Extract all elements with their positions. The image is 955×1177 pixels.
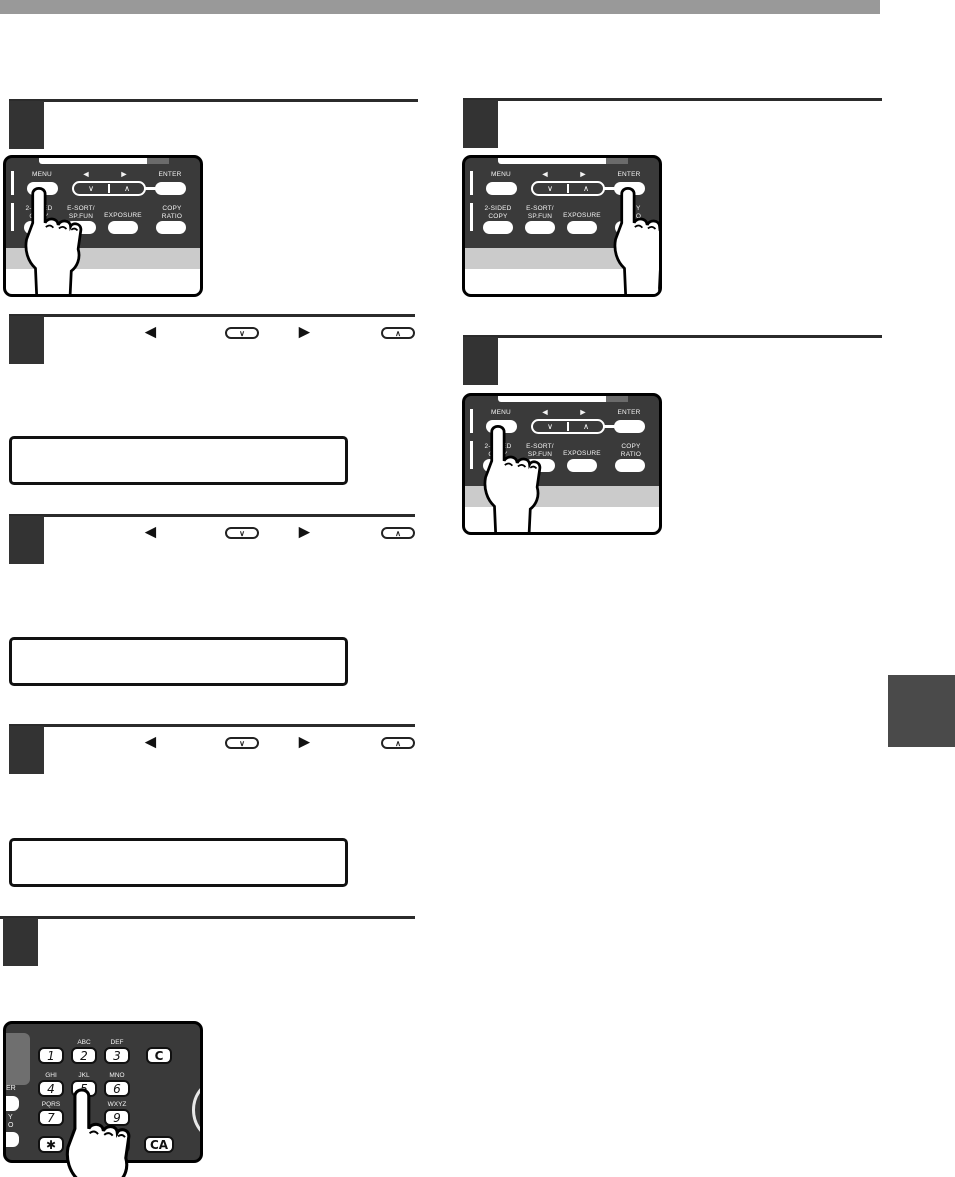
step-rule <box>9 99 418 102</box>
key-letters: MNO <box>104 1072 130 1079</box>
key-3: 3 <box>104 1047 130 1064</box>
step-number-box <box>463 337 498 385</box>
left-arrow-icon: ◄ <box>141 525 160 541</box>
step-rule <box>463 335 882 338</box>
edge-label-er: ER <box>6 1085 16 1093</box>
edge-cutoff-button <box>3 1096 19 1111</box>
down-key-glyph: ∨ <box>239 739 245 748</box>
right-arrow-label: ► <box>573 408 593 417</box>
step-rule <box>463 98 882 101</box>
control-panel-illustration-menu: MENU ◄ ► ∨ ∧ ENTER 2-SIDED COPY E-SORT/ … <box>3 155 203 297</box>
down-key-icon: ∨ <box>225 527 259 539</box>
pointing-hand-illustration <box>473 421 549 535</box>
key-1: 1 <box>38 1047 64 1064</box>
exposure-button <box>567 221 597 234</box>
down-key-glyph: ∨ <box>239 329 245 338</box>
exposure-label: EXPOSURE <box>560 450 604 458</box>
right-arrow-icon: ► <box>295 735 314 751</box>
enter-label: ENTER <box>148 171 192 179</box>
display-slot-notch <box>606 158 628 164</box>
exposure-button <box>108 221 138 234</box>
label-line1: EXPOSURE <box>563 212 601 219</box>
up-key-icon: ∧ <box>381 737 415 749</box>
key-digit: 3 <box>113 1049 121 1063</box>
left-arrow-label: ◄ <box>76 170 96 179</box>
enter-button <box>614 420 645 433</box>
edge-cutoff-button <box>3 1132 19 1147</box>
arrow-keys-group: ∨ ∧ <box>531 181 605 196</box>
display-slot-notch <box>606 396 628 402</box>
panel-tick <box>470 203 473 231</box>
dial-arc <box>200 1086 203 1136</box>
menu-label: MENU <box>20 171 64 179</box>
copy-ratio-button <box>156 221 186 234</box>
menu-label: MENU <box>479 409 523 417</box>
left-arrow-label: ◄ <box>535 170 555 179</box>
step-rule <box>9 314 415 317</box>
key-digit: C <box>155 1049 164 1063</box>
step-number-box <box>3 918 38 966</box>
enter-label: ENTER <box>607 409 651 417</box>
label-line2: COPY <box>488 213 507 220</box>
step-number-box <box>9 316 44 364</box>
control-panel-illustration-menu: MENU ◄ ► ∨ ∧ ENTER 2-SIDED COPY E-SORT/ … <box>462 393 662 535</box>
left-arrow-icon: ◄ <box>141 325 160 341</box>
lcd-display-box <box>9 637 348 686</box>
right-arrow-icon: ► <box>295 325 314 341</box>
label-line1: EXPOSURE <box>104 212 142 219</box>
exposure-label: EXPOSURE <box>560 212 604 220</box>
down-key-glyph: ∨ <box>533 185 567 193</box>
right-arrow-label: ► <box>114 170 134 179</box>
key-letters: DEF <box>104 1039 130 1046</box>
left-arrow-label: ◄ <box>535 408 555 417</box>
copy-ratio-label: COPY RATIO <box>609 443 653 458</box>
enter-label: ENTER <box>607 171 651 179</box>
up-key-glyph: ∧ <box>395 329 401 338</box>
edge-label-y: Y <box>8 1114 13 1122</box>
panel-tick <box>470 171 473 195</box>
two-sided-copy-label: 2-SIDED COPY <box>476 205 520 220</box>
up-key-glyph: ∧ <box>395 529 401 538</box>
clear-key: C <box>146 1047 172 1064</box>
manual-page: ◄ ∨ ► ∧ ◄ ∨ ► ∧ ◄ ∨ ► ∧ MENU ◄ ► ∨ ∧ ENT… <box>0 0 955 1177</box>
up-key-glyph: ∧ <box>110 185 144 193</box>
step-number-box <box>463 100 498 148</box>
esort-spfun-button <box>525 221 555 234</box>
dial-arc <box>192 1076 203 1144</box>
enter-button <box>155 182 186 195</box>
exposure-button <box>567 459 597 472</box>
right-arrow-icon: ► <box>295 525 314 541</box>
edge-cutoff-button <box>3 1033 30 1085</box>
step-rule <box>0 916 415 919</box>
clear-all-key: CA <box>144 1136 174 1153</box>
lcd-display-box <box>9 436 348 485</box>
step-number-box <box>9 516 44 564</box>
key-2: 2 <box>71 1047 97 1064</box>
chapter-side-tab <box>888 675 955 747</box>
key-digit: CA <box>150 1138 168 1152</box>
label-line1: E-SORT/ <box>526 205 554 212</box>
pointing-hand-illustration <box>603 183 662 297</box>
lcd-display-box <box>9 838 348 887</box>
exposure-label: EXPOSURE <box>101 212 145 220</box>
copy-ratio-button <box>615 459 645 472</box>
menu-button <box>486 182 517 195</box>
label-line1: COPY <box>621 443 640 450</box>
up-key-glyph: ∧ <box>569 423 603 431</box>
key-digit: 1 <box>47 1049 55 1063</box>
right-arrow-label: ► <box>573 170 593 179</box>
label-line1: EXPOSURE <box>563 450 601 457</box>
key-letters: GHI <box>38 1072 64 1079</box>
label-line1: COPY <box>162 205 181 212</box>
up-key-glyph: ∧ <box>569 185 603 193</box>
page-top-bar <box>0 0 880 14</box>
key-digit: 2 <box>80 1049 88 1063</box>
edge-label-o: O <box>8 1122 13 1130</box>
control-panel-illustration-enter: MENU ◄ ► ∨ ∧ ENTER 2-SIDED COPY E-SORT/ … <box>462 155 662 297</box>
two-sided-copy-button <box>483 221 513 234</box>
key-letters: ABC <box>71 1039 97 1046</box>
down-key-glyph: ∨ <box>239 529 245 538</box>
up-key-icon: ∧ <box>381 327 415 339</box>
step-number-box <box>9 101 44 149</box>
step-rule <box>9 514 415 517</box>
esort-spfun-label: E-SORT/ SP.FUN <box>518 205 562 220</box>
down-key-icon: ∨ <box>225 737 259 749</box>
label-line2: RATIO <box>621 451 641 458</box>
pointing-hand-illustration <box>54 1084 139 1177</box>
step-number-box <box>9 726 44 774</box>
pointing-hand-illustration <box>14 183 90 297</box>
step-rule <box>9 724 415 727</box>
left-arrow-icon: ◄ <box>141 735 160 751</box>
display-slot-notch <box>147 158 169 164</box>
up-key-icon: ∧ <box>381 527 415 539</box>
down-key-icon: ∨ <box>225 327 259 339</box>
label-line1: 2-SIDED <box>484 205 511 212</box>
key-letters: JKL <box>71 1072 97 1079</box>
up-key-glyph: ∧ <box>395 739 401 748</box>
menu-label: MENU <box>479 171 523 179</box>
label-line2: SP.FUN <box>528 213 552 220</box>
copy-ratio-label: COPY RATIO <box>150 205 194 220</box>
label-line2: RATIO <box>162 213 182 220</box>
